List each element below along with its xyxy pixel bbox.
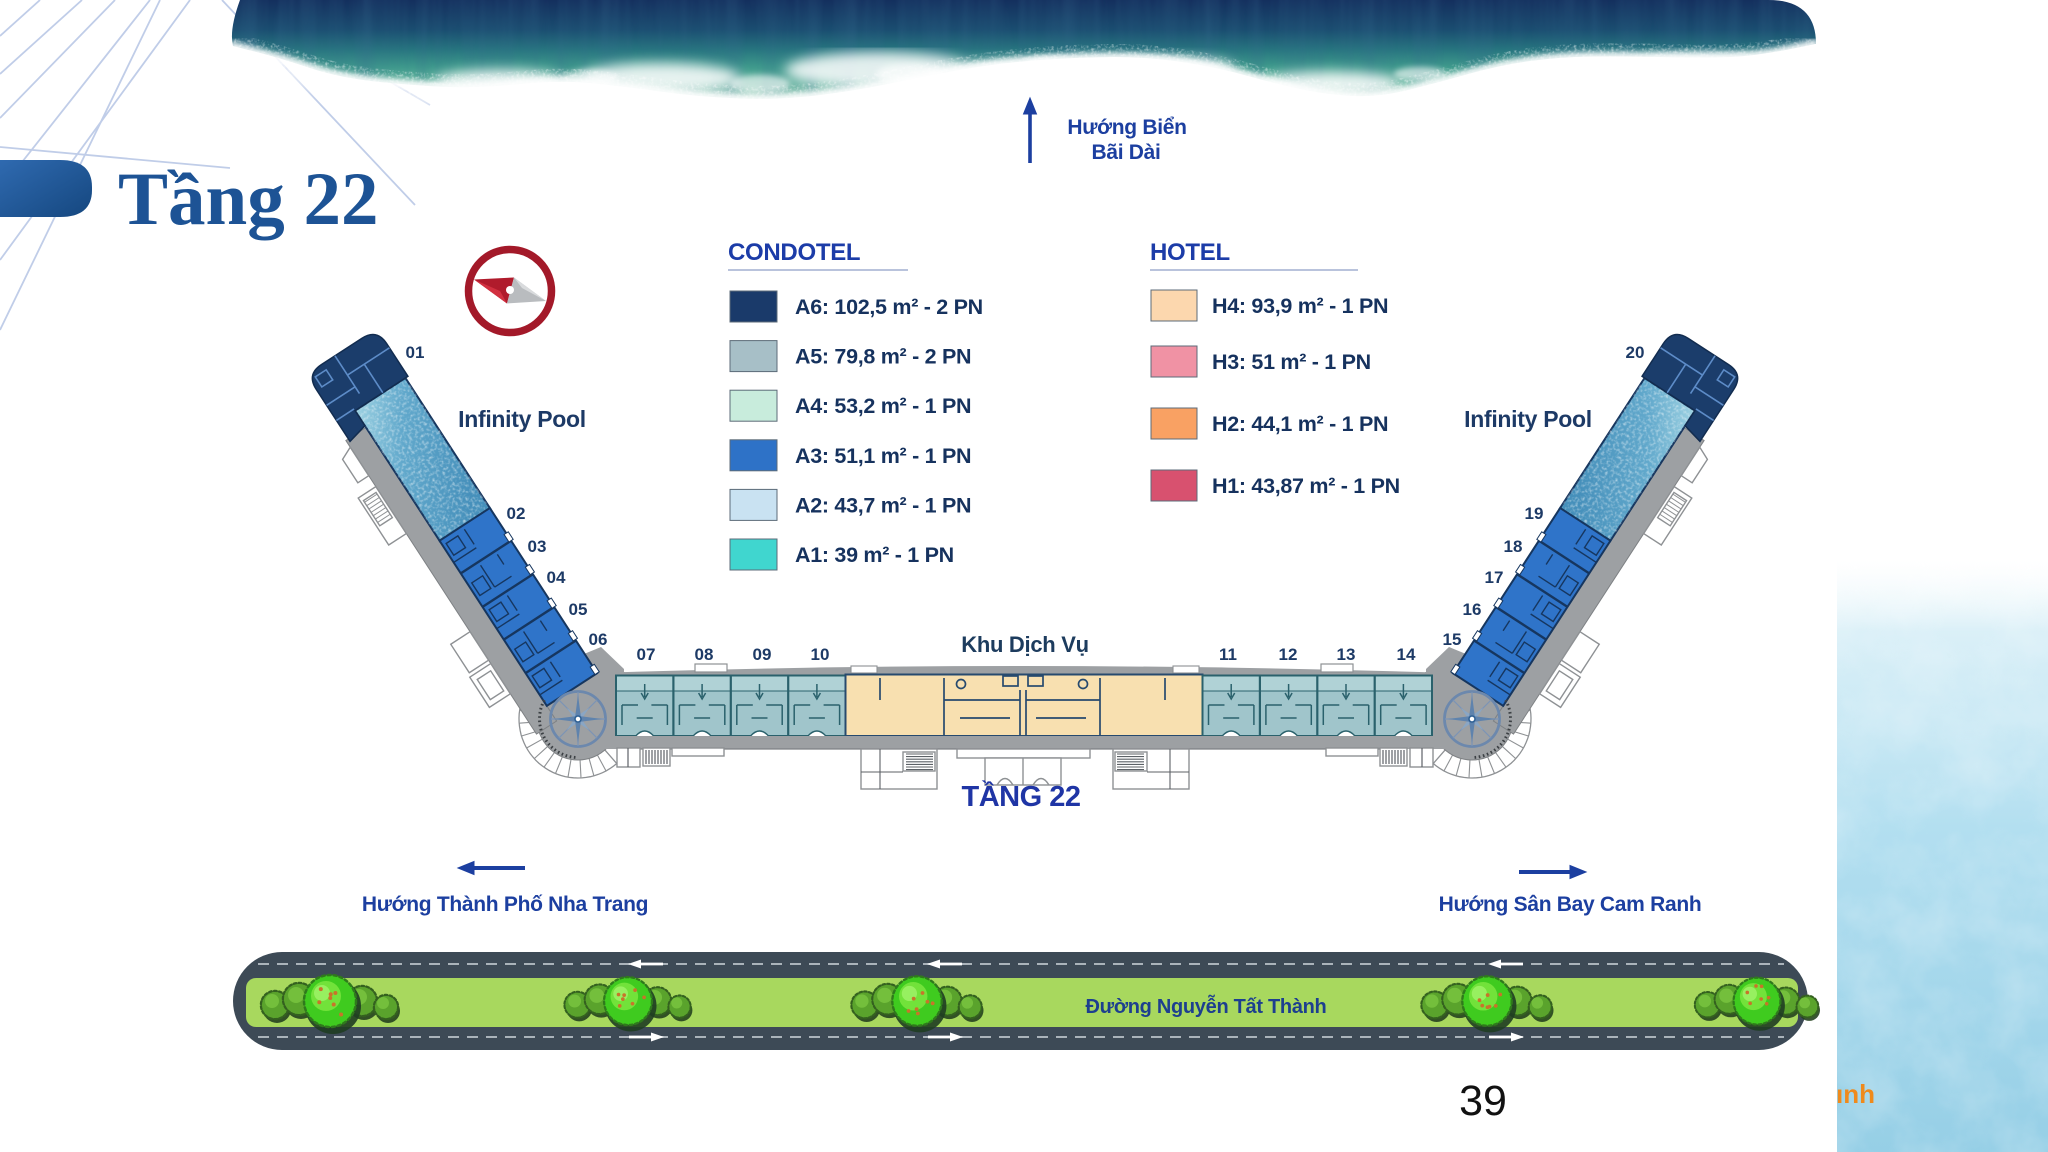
- svg-text:16: 16: [1463, 600, 1482, 619]
- svg-text:H4: 93,9 m² - 1 PN: H4: 93,9 m² - 1 PN: [1212, 294, 1388, 318]
- svg-text:12: 12: [1279, 645, 1298, 664]
- svg-text:ınh: ınh: [1836, 1079, 1875, 1109]
- svg-text:18: 18: [1504, 537, 1523, 556]
- svg-text:06: 06: [589, 630, 608, 649]
- svg-text:A1: 39 m² - 1 PN: A1: 39 m² - 1 PN: [795, 543, 954, 567]
- svg-text:13: 13: [1337, 645, 1356, 664]
- svg-text:11: 11: [1219, 645, 1237, 664]
- svg-text:Hướng Biển: Hướng Biển: [1067, 116, 1186, 139]
- svg-text:14: 14: [1397, 645, 1416, 664]
- svg-text:HOTEL: HOTEL: [1150, 239, 1230, 266]
- svg-text:Khu Dịch Vụ: Khu Dịch Vụ: [961, 632, 1088, 657]
- svg-text:A6: 102,5 m² - 2 PN: A6: 102,5 m² - 2 PN: [795, 295, 983, 319]
- svg-text:Hướng Sân Bay Cam Ranh: Hướng Sân Bay Cam Ranh: [1439, 893, 1702, 916]
- svg-text:Infinity Pool: Infinity Pool: [1464, 406, 1592, 432]
- svg-text:15: 15: [1443, 630, 1462, 649]
- svg-text:08: 08: [695, 645, 714, 664]
- svg-text:17: 17: [1485, 568, 1504, 587]
- svg-text:05: 05: [569, 600, 588, 619]
- svg-text:Đường Nguyễn Tất Thành: Đường Nguyễn Tất Thành: [1086, 994, 1327, 1018]
- svg-text:10: 10: [811, 645, 830, 664]
- svg-text:04: 04: [547, 568, 566, 587]
- svg-text:H1: 43,87 m² - 1 PN: H1: 43,87 m² - 1 PN: [1212, 474, 1400, 498]
- svg-text:20: 20: [1626, 343, 1645, 362]
- svg-text:TẦNG 22: TẦNG 22: [962, 779, 1081, 813]
- svg-text:19: 19: [1525, 504, 1544, 523]
- svg-text:A2: 43,7 m² - 1 PN: A2: 43,7 m² - 1 PN: [795, 493, 971, 517]
- svg-text:07: 07: [637, 645, 656, 664]
- svg-text:H3: 51 m² - 1 PN: H3: 51 m² - 1 PN: [1212, 350, 1371, 374]
- svg-text:Hướng Thành Phố Nha Trang: Hướng Thành Phố Nha Trang: [362, 893, 648, 916]
- svg-text:Bãi Dài: Bãi Dài: [1091, 141, 1160, 164]
- svg-text:03: 03: [528, 537, 547, 556]
- svg-text:A4: 53,2 m² - 1 PN: A4: 53,2 m² - 1 PN: [795, 394, 971, 418]
- svg-text:09: 09: [753, 645, 772, 664]
- svg-text:39: 39: [1459, 1077, 1507, 1125]
- svg-text:H2: 44,1 m² - 1 PN: H2: 44,1 m² - 1 PN: [1212, 412, 1388, 436]
- svg-text:Tầng 22: Tầng 22: [118, 158, 379, 241]
- svg-text:A3: 51,1 m² - 1 PN: A3: 51,1 m² - 1 PN: [795, 444, 971, 468]
- svg-text:CONDOTEL: CONDOTEL: [728, 239, 860, 266]
- svg-text:Infinity Pool: Infinity Pool: [458, 406, 586, 432]
- svg-text:02: 02: [507, 504, 526, 523]
- svg-text:A5: 79,8 m² - 2 PN: A5: 79,8 m² - 2 PN: [795, 345, 971, 369]
- svg-text:01: 01: [406, 343, 425, 362]
